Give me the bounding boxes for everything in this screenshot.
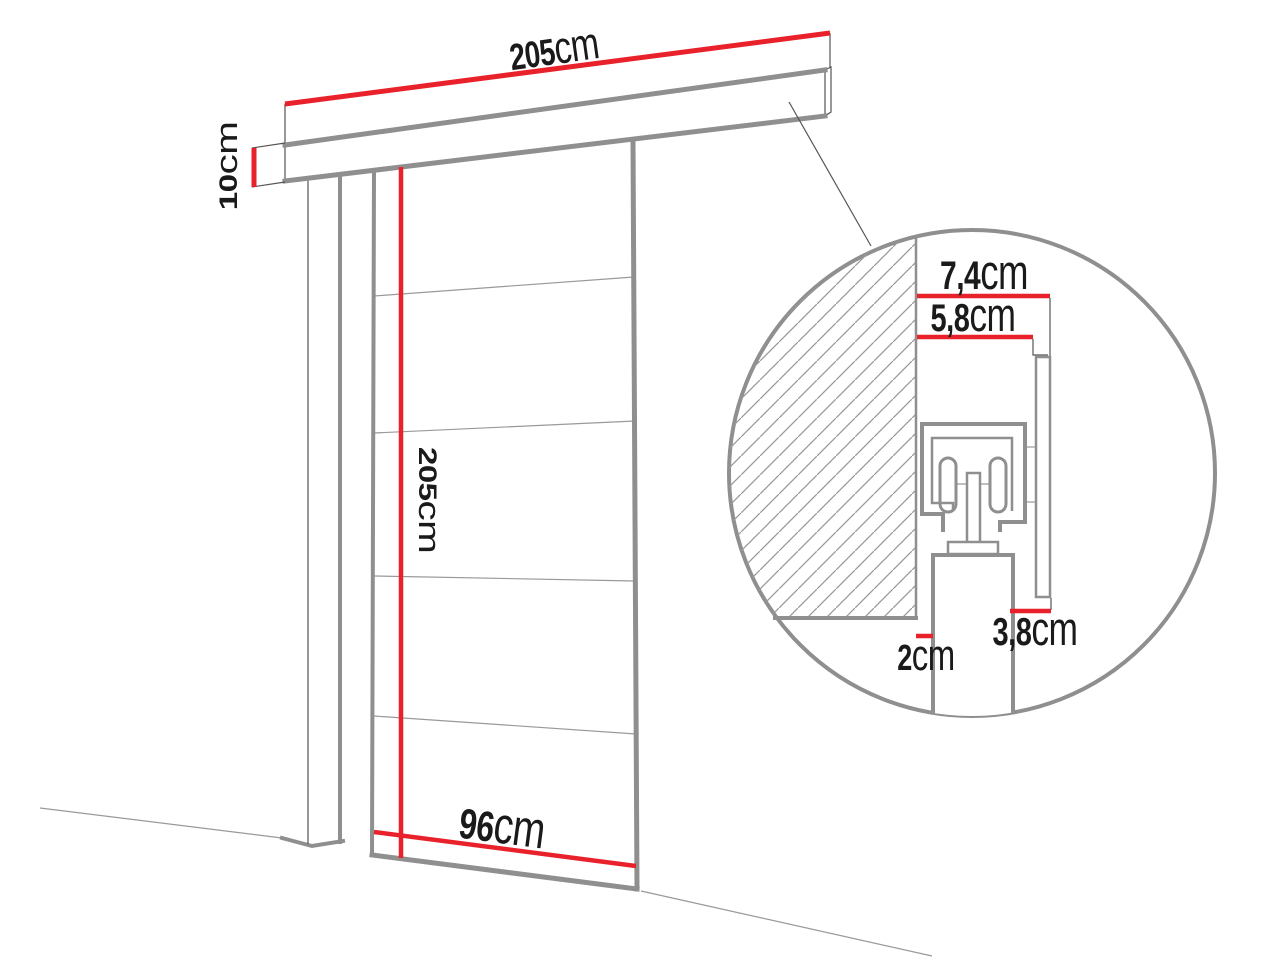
detail-fascia-strip	[1036, 357, 1050, 597]
door-left-edge	[372, 168, 374, 855]
diagram-canvas: 205cm 10cm 205cm 96cm	[0, 0, 1280, 960]
track-height-ext-bottom	[252, 182, 285, 187]
sliding-door-diagram: 205cm 10cm 205cm 96cm	[0, 0, 1280, 960]
wall-hatch-area	[729, 228, 916, 618]
detail-depth-inner-ext	[1033, 339, 1048, 355]
hanger-stem	[967, 473, 980, 543]
floor-line-left	[40, 808, 282, 838]
door-height-label: 205cm	[412, 447, 446, 553]
floor-line-right	[641, 891, 932, 956]
wall-pillar-base	[282, 838, 343, 846]
detail-wall-gap-label: 2cm	[897, 632, 954, 681]
fascia-end-cap	[825, 67, 831, 116]
track-height-ext-top	[252, 143, 285, 148]
hanger-bolt-plate	[948, 542, 998, 554]
dimension-detail-wall-gap: 2cm	[897, 632, 954, 681]
roller-right	[990, 458, 1006, 512]
dimension-track-height: 10cm	[210, 122, 285, 210]
detail-callout: 7,4cm 5,8cm	[729, 102, 1215, 725]
track-height-label: 10cm	[210, 122, 244, 210]
detail-leader-line	[789, 102, 871, 246]
detail-wall-section	[729, 228, 916, 618]
